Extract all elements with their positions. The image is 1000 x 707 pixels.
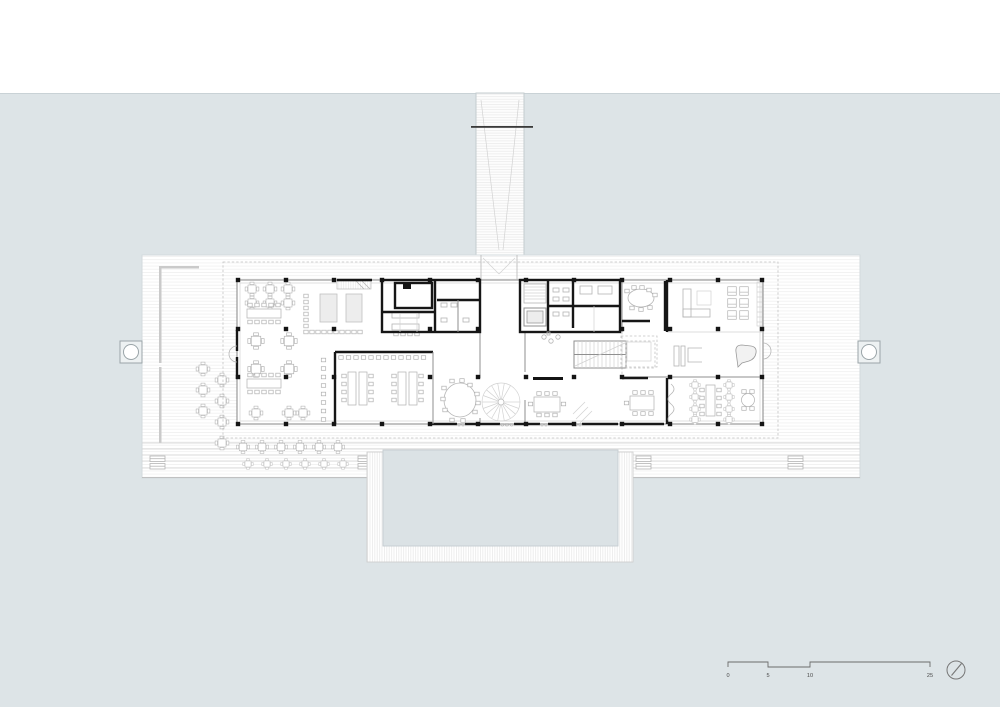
scale-label-10: 10 (807, 673, 813, 679)
counter (247, 379, 281, 388)
elevator (524, 308, 546, 326)
footbridge-ramp (471, 93, 533, 255)
scale-label-25: 25 (927, 673, 933, 679)
counter (247, 309, 281, 318)
bridge-section-line (471, 126, 533, 128)
page-top-margin (0, 0, 1000, 93)
floor-plan-drawing: 0 5 10 25 (0, 0, 1000, 707)
floor-plan-sheet: 0 5 10 25 (0, 0, 1000, 707)
scale-label-5: 5 (766, 673, 769, 679)
reception-desk (533, 377, 563, 380)
buffet-island (320, 294, 337, 322)
buffet-island (346, 294, 362, 322)
scale-label-0: 0 (726, 673, 729, 679)
site-column-marker-right (858, 341, 880, 363)
building-footprint (223, 255, 778, 438)
sunken-terrace-pool (367, 450, 633, 562)
site-column-marker-left (120, 341, 142, 363)
perimeter-wall (237, 280, 763, 424)
lounge-table (534, 397, 560, 412)
pool-water (383, 450, 618, 546)
